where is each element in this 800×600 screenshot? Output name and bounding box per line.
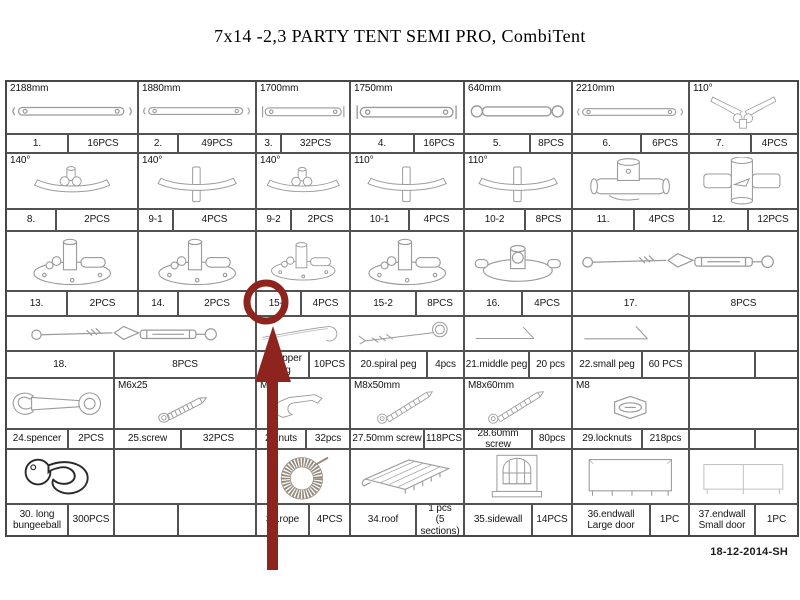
part-label-cell: 2PCS: [69, 430, 115, 448]
part-label-cell: 25.screw: [115, 430, 182, 448]
part-label-cell: 34.roof: [351, 505, 417, 535]
date-code: 18-12-2014-SH: [710, 546, 788, 558]
empty-cell: [115, 450, 257, 503]
dimension-label: M8x60mm: [468, 380, 514, 391]
part-label-cell: 6PCS: [642, 135, 690, 152]
part-label-cell: 2PCS: [68, 292, 139, 315]
sidewall-cell: [465, 450, 573, 503]
foot-plate-small-cell: [465, 232, 573, 290]
dimension-label: 110°: [468, 155, 488, 166]
part-label-cell: 4PCS: [410, 210, 465, 230]
dimension-label: 110°: [354, 155, 374, 166]
pole-long-cell: 1880mm: [139, 82, 257, 133]
bracket-clamp-cell: 140°: [257, 154, 351, 208]
table-row: 24.spencer2PCS25.screw32PCS26.nuts32pcs2…: [7, 430, 797, 450]
pole-short-icon: [465, 90, 571, 133]
part-label-cell: 20.spiral peg: [351, 352, 428, 377]
dimension-label: 2188mm: [10, 83, 48, 94]
part-label-cell: 4pcs: [428, 352, 465, 377]
table-row: M6x25M6M8x50mmM8x60mmM8: [7, 379, 797, 430]
part-label-cell: 32PCS: [282, 135, 351, 152]
dimension-label: 110°: [693, 83, 713, 94]
empty-cell: [756, 352, 797, 377]
part-label-cell: 37.endwall Small door: [690, 505, 756, 535]
bolt-cell: M8x60mm: [465, 379, 573, 428]
endwall-large-icon: [573, 450, 688, 503]
dimension-label: M6: [260, 380, 274, 391]
part-label-cell: 13.: [7, 292, 68, 315]
pole-bracket-cell: 1700mm: [257, 82, 351, 133]
foot-plate-cell: [139, 232, 257, 290]
dimension-label: 1880mm: [142, 83, 180, 94]
cross-connector-icon: [690, 154, 797, 208]
part-label-cell: 14.: [139, 292, 179, 315]
part-label-cell: 4PCS: [174, 210, 257, 230]
pole-long-icon: [139, 90, 255, 133]
part-label-cell: 9-2: [257, 210, 292, 230]
part-label-cell: 22.small peg: [573, 352, 643, 377]
corner-3way-cell: 110°: [690, 82, 797, 133]
table-row: [7, 317, 797, 352]
part-label-cell: 80pcs: [533, 430, 573, 448]
foot-plate-icon: [139, 232, 255, 290]
part-label-cell: 17.: [573, 292, 690, 315]
roof-bundle-cell: [351, 450, 465, 503]
angle-peg-cell: [465, 317, 573, 350]
part-label-cell: 5.: [465, 135, 531, 152]
spiral-peg-cell: [351, 317, 465, 350]
part-label-cell: 16PCS: [415, 135, 465, 152]
part-label-cell: 8PCS: [417, 292, 465, 315]
table-row: 1.16PCS2.49PCS3.32PCS4.16PCS5.8PCS6.6PCS…: [7, 135, 797, 154]
part-label-cell: 8PCS: [690, 292, 797, 315]
dimension-label: 1750mm: [354, 83, 392, 94]
pole-short-cell: 640mm: [465, 82, 573, 133]
pole-long-icon: [573, 90, 688, 133]
part-label-cell: 218pcs: [643, 430, 690, 448]
clip-icon: [257, 387, 349, 428]
part-label-cell: 27.50mm screw: [351, 430, 425, 448]
pole-bracket-cell: 1750mm: [351, 82, 465, 133]
empty-cell: [115, 505, 179, 535]
pole-long-cell: 2188mm: [7, 82, 139, 133]
pole-bracket-icon: [257, 90, 349, 133]
screw-cell: M6x25: [115, 379, 257, 428]
part-label-cell: 10PCS: [310, 352, 351, 377]
dimension-label: M8: [576, 380, 590, 391]
part-label-cell: 12.: [690, 210, 749, 230]
part-label-cell: 9-1: [139, 210, 174, 230]
turnbuckle-icon: [573, 232, 797, 290]
spiral-peg-icon: [351, 317, 463, 350]
dimension-label: 640mm: [468, 83, 501, 94]
endwall-small-icon: [690, 450, 797, 503]
part-label-cell: 4PCS: [523, 292, 573, 315]
part-label-cell: 118PCS: [425, 430, 465, 448]
table-row: 140°140°140°110°110°: [7, 154, 797, 210]
part-label-cell: 15-2: [351, 292, 417, 315]
table-row: 18.8PCS19.upper peg10PCS20.spiral peg4pc…: [7, 352, 797, 379]
part-label-cell: 2PCS: [179, 292, 257, 315]
part-label-cell: 24.spencer: [7, 430, 69, 448]
bolt-icon: [351, 387, 463, 428]
rope-coil-icon: [257, 450, 349, 503]
part-label-cell: 4PCS: [635, 210, 690, 230]
table-row: 2188mm1880mm1700mm1750mm640mm2210mm110°: [7, 82, 797, 135]
dimension-label: 2210mm: [576, 83, 614, 94]
turnbuckle-cell: [7, 317, 257, 350]
foot-plate-icon: [257, 232, 349, 290]
corner-3way-icon: [690, 90, 797, 133]
empty-cell: [756, 430, 797, 448]
part-label-cell: 7.: [690, 135, 752, 152]
roof-bundle-icon: [351, 450, 463, 503]
part-label-cell: 10-1: [351, 210, 410, 230]
bracket-clamp-cell: 140°: [7, 154, 139, 208]
part-label-cell: 2PCS: [57, 210, 139, 230]
part-label-cell: 11.: [573, 210, 635, 230]
part-label-cell: 30. long bungeeball: [7, 505, 69, 535]
part-label-cell: 3.: [257, 135, 282, 152]
screw-icon: [115, 387, 255, 428]
empty-cell: [690, 430, 756, 448]
part-label-cell: 21.middle peg: [465, 352, 530, 377]
angle-peg-icon: [573, 317, 688, 350]
part-label-cell: 28.60mm screw: [465, 430, 533, 448]
hex-nut-cell: M8: [573, 379, 690, 428]
part-label-cell: 4.: [351, 135, 415, 152]
dimension-label: 140°: [10, 155, 30, 166]
turnbuckle-cell: [573, 232, 797, 290]
wrench-cell: [7, 379, 115, 428]
hex-nut-icon: [573, 387, 688, 428]
part-label-cell: 10-2: [465, 210, 526, 230]
bracket-plain-cell: 140°: [139, 154, 257, 208]
turnbuckle-icon: [7, 317, 255, 350]
dimension-label: M8x50mm: [354, 380, 400, 391]
foot-plate-cell: [351, 232, 465, 290]
part-label-cell: 8PCS: [526, 210, 573, 230]
part-label-cell: 15-1: [257, 292, 302, 315]
bracket-clamp-icon: [257, 162, 349, 208]
angle-peg-cell: [573, 317, 690, 350]
table-row: 8.2PCS9-14PCS9-22PCS10-14PCS10-28PCS11.4…: [7, 210, 797, 232]
part-label-cell: 8.: [7, 210, 57, 230]
pole-long-icon: [7, 90, 137, 133]
cross-connector-cell: [690, 154, 797, 208]
part-label-cell: 49PCS: [179, 135, 257, 152]
part-label-cell: 8PCS: [531, 135, 573, 152]
part-label-cell: 16PCS: [69, 135, 139, 152]
foot-plate-icon: [351, 232, 463, 290]
part-label-cell: 2.: [139, 135, 179, 152]
part-label-cell: 2PCS: [292, 210, 351, 230]
table-row: 30. long bungeeball300PCS32.rope4PCS34.r…: [7, 505, 797, 535]
part-label-cell: 8PCS: [115, 352, 257, 377]
page-title: 7x14 -2,3 PARTY TENT SEMI PRO, CombiTent: [0, 26, 800, 47]
dimension-label: M6x25: [118, 380, 148, 391]
bracket-plain-icon: [351, 162, 463, 208]
foot-plate-cell: [257, 232, 351, 290]
empty-cell: [690, 352, 756, 377]
part-label-cell: 12PCS: [749, 210, 797, 230]
dimension-label: 1700mm: [260, 83, 298, 94]
pole-long-cell: 2210mm: [573, 82, 690, 133]
part-label-cell: 29.locknuts: [573, 430, 643, 448]
part-label-cell: 60 PCS: [643, 352, 690, 377]
clip-cell: M6: [257, 379, 351, 428]
part-label-cell: 14PCS: [533, 505, 573, 535]
bungee-ball-icon: [7, 450, 113, 503]
sidewall-icon: [465, 450, 571, 503]
hook-peg-cell: [257, 317, 351, 350]
part-label-cell: 32pcs: [307, 430, 351, 448]
bungee-ball-cell: [7, 450, 115, 503]
table-row: 13.2PCS14.2PCS15-14PCS15-28PCS16.4PCS17.…: [7, 292, 797, 317]
part-label-cell: 18.: [7, 352, 115, 377]
foot-plate-cell: [7, 232, 139, 290]
dimension-label: 140°: [142, 155, 162, 166]
part-label-cell: 26.nuts: [257, 430, 307, 448]
part-label-cell: 4PCS: [310, 505, 351, 535]
part-label-cell: 32.rope: [257, 505, 310, 535]
part-label-cell: 4PCS: [302, 292, 351, 315]
part-label-cell: 20 pcs: [530, 352, 573, 377]
part-label-cell: 6.: [573, 135, 642, 152]
tee-connector-icon: [573, 154, 688, 208]
angle-peg-icon: [465, 317, 571, 350]
empty-cell: [179, 505, 257, 535]
part-label-cell: 4PCS: [752, 135, 797, 152]
wrench-icon: [7, 379, 113, 428]
part-label-cell: 1PC: [756, 505, 797, 535]
part-label-cell: 1PC: [651, 505, 690, 535]
foot-plate-small-icon: [465, 232, 571, 290]
foot-plate-icon: [7, 232, 137, 290]
empty-cell: [690, 379, 797, 428]
bracket-plain-icon: [139, 162, 255, 208]
table-row: [7, 450, 797, 505]
dimension-label: 140°: [260, 155, 280, 166]
part-label-cell: 16.: [465, 292, 523, 315]
part-label-cell: 300PCS: [69, 505, 115, 535]
part-label-cell: 1.: [7, 135, 69, 152]
endwall-small-cell: [690, 450, 797, 503]
bracket-plain-icon: [465, 162, 571, 208]
parts-table: 2188mm1880mm1700mm1750mm640mm2210mm110°1…: [5, 80, 799, 537]
tee-connector-cell: [573, 154, 690, 208]
hook-peg-icon: [257, 317, 349, 350]
table-row: [7, 232, 797, 292]
endwall-large-cell: [573, 450, 690, 503]
bracket-plain-cell: 110°: [351, 154, 465, 208]
part-label-cell: 32PCS: [182, 430, 257, 448]
part-label-cell: 36.endwall Large door: [573, 505, 651, 535]
bracket-clamp-icon: [7, 162, 137, 208]
bracket-plain-cell: 110°: [465, 154, 573, 208]
pole-bracket-icon: [351, 90, 463, 133]
empty-cell: [690, 317, 797, 350]
rope-coil-cell: [257, 450, 351, 503]
part-label-cell: 19.upper peg: [257, 352, 310, 377]
part-label-cell: 35.sidewall: [465, 505, 533, 535]
bolt-cell: M8x50mm: [351, 379, 465, 428]
bolt-icon: [465, 387, 571, 428]
part-label-cell: 1 pcs (5 sections): [417, 505, 465, 535]
